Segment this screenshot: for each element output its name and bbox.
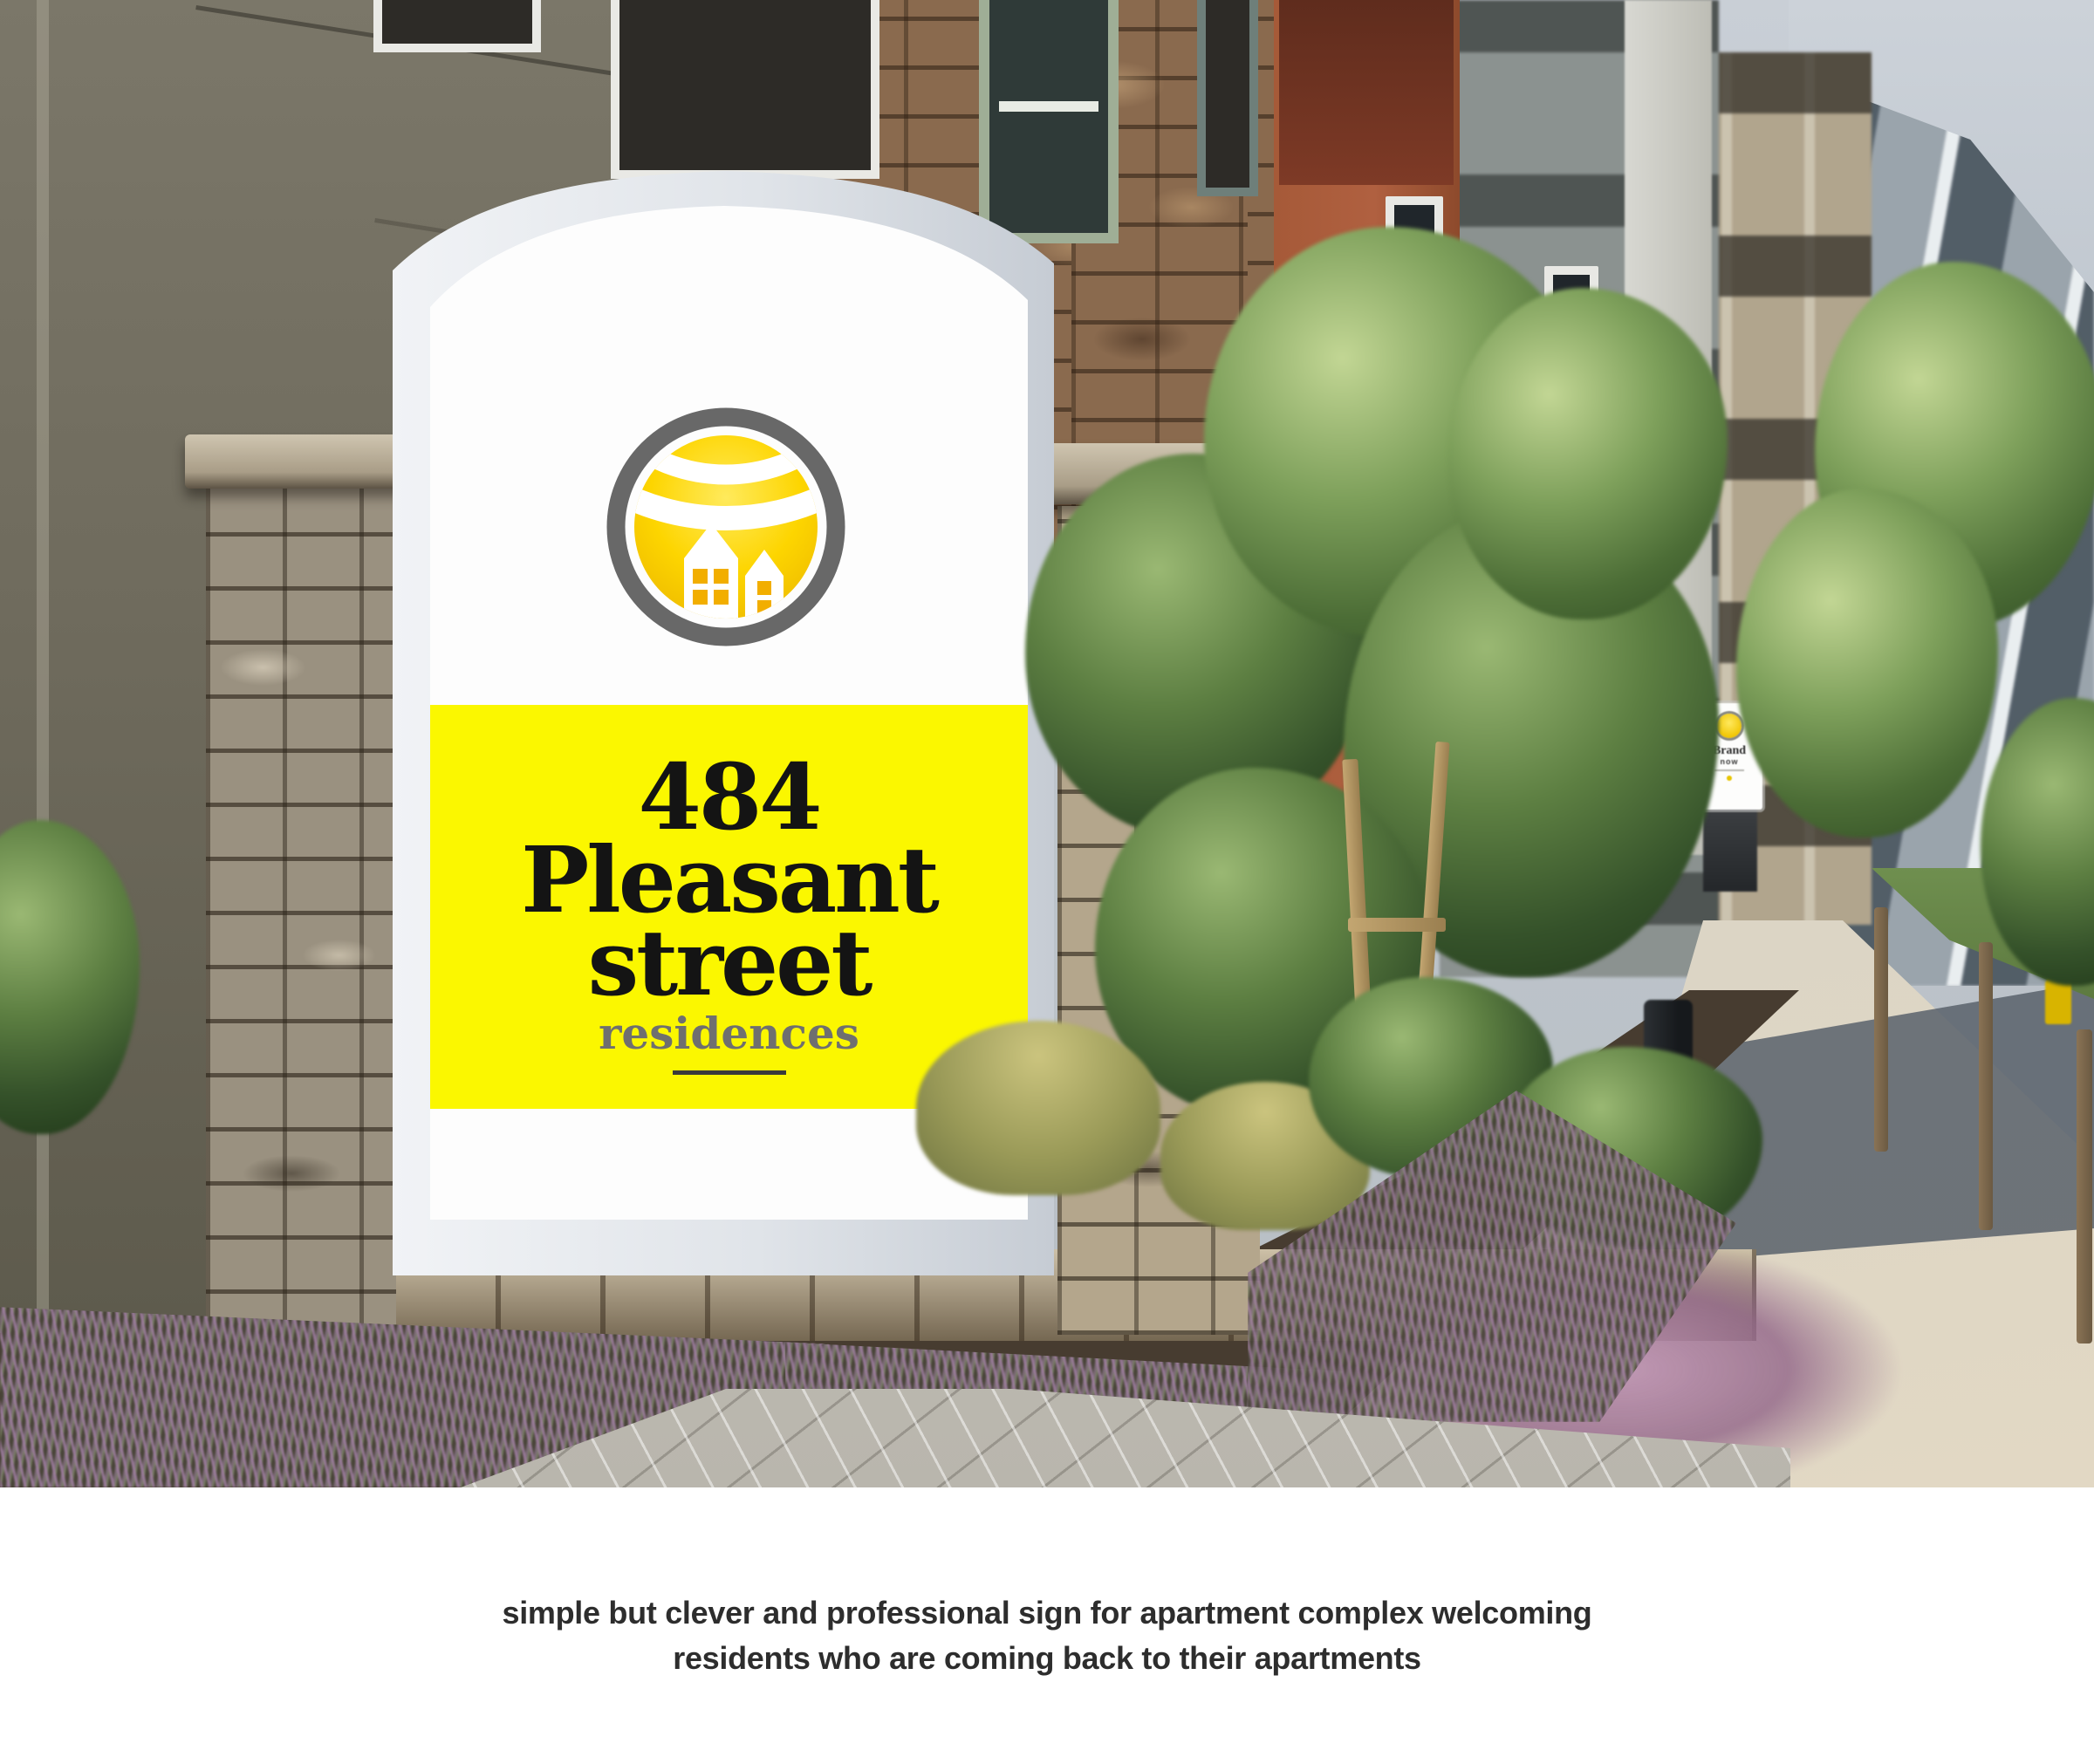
distant-sign-dot-icon <box>1727 776 1732 781</box>
sun-over-houses-logo-icon <box>604 405 848 649</box>
sign-underline <box>673 1070 786 1075</box>
caption-line-2: residents who are coming back to their a… <box>673 1636 1421 1681</box>
tree-trunk <box>1979 942 1993 1230</box>
distant-sign-text-bar <box>1714 769 1744 771</box>
caption-strip: simple but clever and professional sign … <box>0 1487 2094 1764</box>
stone-pillar-left <box>206 475 396 1348</box>
window <box>373 0 541 52</box>
rust-building-canopy <box>1279 0 1454 185</box>
tree-trunk <box>2077 1029 2092 1344</box>
distant-sign-base <box>1703 808 1757 892</box>
caption-line-1: simple but clever and professional sign … <box>502 1590 1591 1636</box>
tree-trunk <box>1874 907 1888 1152</box>
window <box>611 0 879 179</box>
mockup-page: Brand now <box>0 0 2094 1764</box>
distant-sign-line2: now <box>1721 757 1739 766</box>
distant-sign-logo-icon <box>1717 714 1742 738</box>
tree-stake-crossbar <box>1348 918 1446 932</box>
sign-address-street2: street <box>588 921 871 1004</box>
ornamental-grass <box>916 1021 1160 1195</box>
sign-descriptor: residences <box>599 1009 859 1058</box>
window-sash <box>999 101 1098 112</box>
sign-yellow-panel: 484 Pleasant street residences <box>430 705 1028 1109</box>
street-photo: Brand now <box>0 0 2094 1487</box>
door-frame <box>1197 0 1258 196</box>
